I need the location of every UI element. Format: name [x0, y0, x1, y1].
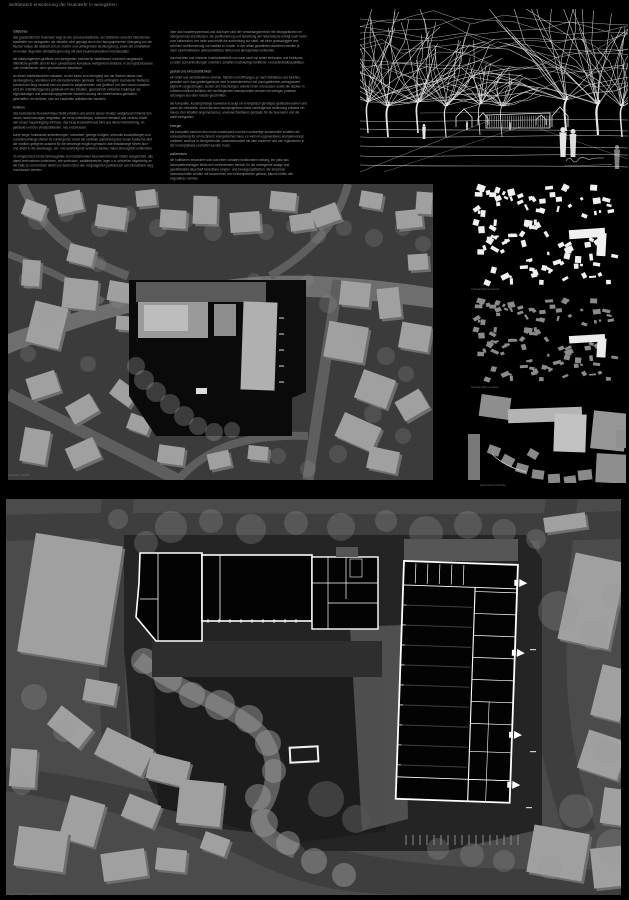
- section-heading: städtebau: [13, 30, 153, 34]
- section-heading: gestalt und wirtschaftlichkeit: [170, 70, 307, 74]
- body-paragraph: ein relief aus verschiedenen ebenen, flä…: [170, 75, 307, 98]
- sketch-figure: [570, 134, 577, 157]
- sketch-figure: [466, 123, 468, 130]
- town-detail-map: [468, 390, 626, 483]
- body-paragraph: an dieser städtebaulichen situation, an …: [13, 74, 153, 102]
- body-paragraph: die stadtprägenden gebäude von weingarte…: [13, 57, 153, 71]
- figure-ground-existing: [471, 183, 623, 287]
- body-paragraph: die kompakte bauform des neuen baukörper…: [170, 130, 307, 148]
- dimension-mark: [530, 649, 536, 650]
- body-paragraph: die hofflächen entwickeln sich aus einer…: [170, 158, 307, 181]
- body-paragraph: kurze wege, funktionale anforderungen, r…: [13, 133, 153, 151]
- section-heading: außenraum: [170, 153, 307, 157]
- section-heading: funktion: [13, 106, 153, 110]
- master-plan-caption: lageplan mit erdgeschoss 1:500: [8, 893, 50, 896]
- dimension-mark: [530, 751, 536, 752]
- body-paragraph: über das haupttreppenhaus und das foyer …: [170, 30, 307, 53]
- body-paragraph: durchsichten und einfache funktionsabläu…: [170, 56, 307, 65]
- figure-ground-proposed: [471, 297, 623, 383]
- text-column-1: städtebaudas grundstück der feuerwehr li…: [13, 30, 153, 196]
- dimension-mark: [526, 807, 532, 808]
- section-heading: energie: [170, 124, 307, 128]
- sketch-figure: [422, 127, 426, 139]
- sketch-figure: [559, 132, 566, 157]
- text-column-2: über das haupttreppenhaus und das foyer …: [170, 30, 307, 196]
- board-title: wettbewerb erweiterung der feuerwehr in …: [9, 2, 117, 7]
- fg-existing-caption: schwarzplan bestand: [471, 288, 499, 291]
- sketch-figure: [509, 123, 511, 130]
- body-paragraph: im erdgeschoss ist die fahrzeughalle zum…: [13, 154, 153, 172]
- fg-proposed-caption: schwarzplan neubau: [471, 386, 499, 389]
- site-plan-caption: lageplan 1:1000: [8, 474, 29, 477]
- master-plan: [6, 499, 621, 895]
- body-paragraph: das grundstück der feuerwehr liegt an de…: [13, 36, 153, 54]
- perspective-sketch: [360, 9, 628, 172]
- site-plan-map: [8, 184, 433, 480]
- detail-map-caption: ausschnitt ortsmitte: [480, 484, 506, 487]
- body-paragraph: das bestehende feuerwehrhaus bleibt erha…: [13, 111, 153, 129]
- sketch-figure: [614, 149, 620, 169]
- competition-board: wettbewerb erweiterung der feuerwehr in …: [0, 0, 629, 900]
- body-paragraph: die kompakte, kostengünstige bauweise er…: [170, 101, 307, 119]
- essay-text: städtebaudas grundstück der feuerwehr li…: [13, 30, 315, 196]
